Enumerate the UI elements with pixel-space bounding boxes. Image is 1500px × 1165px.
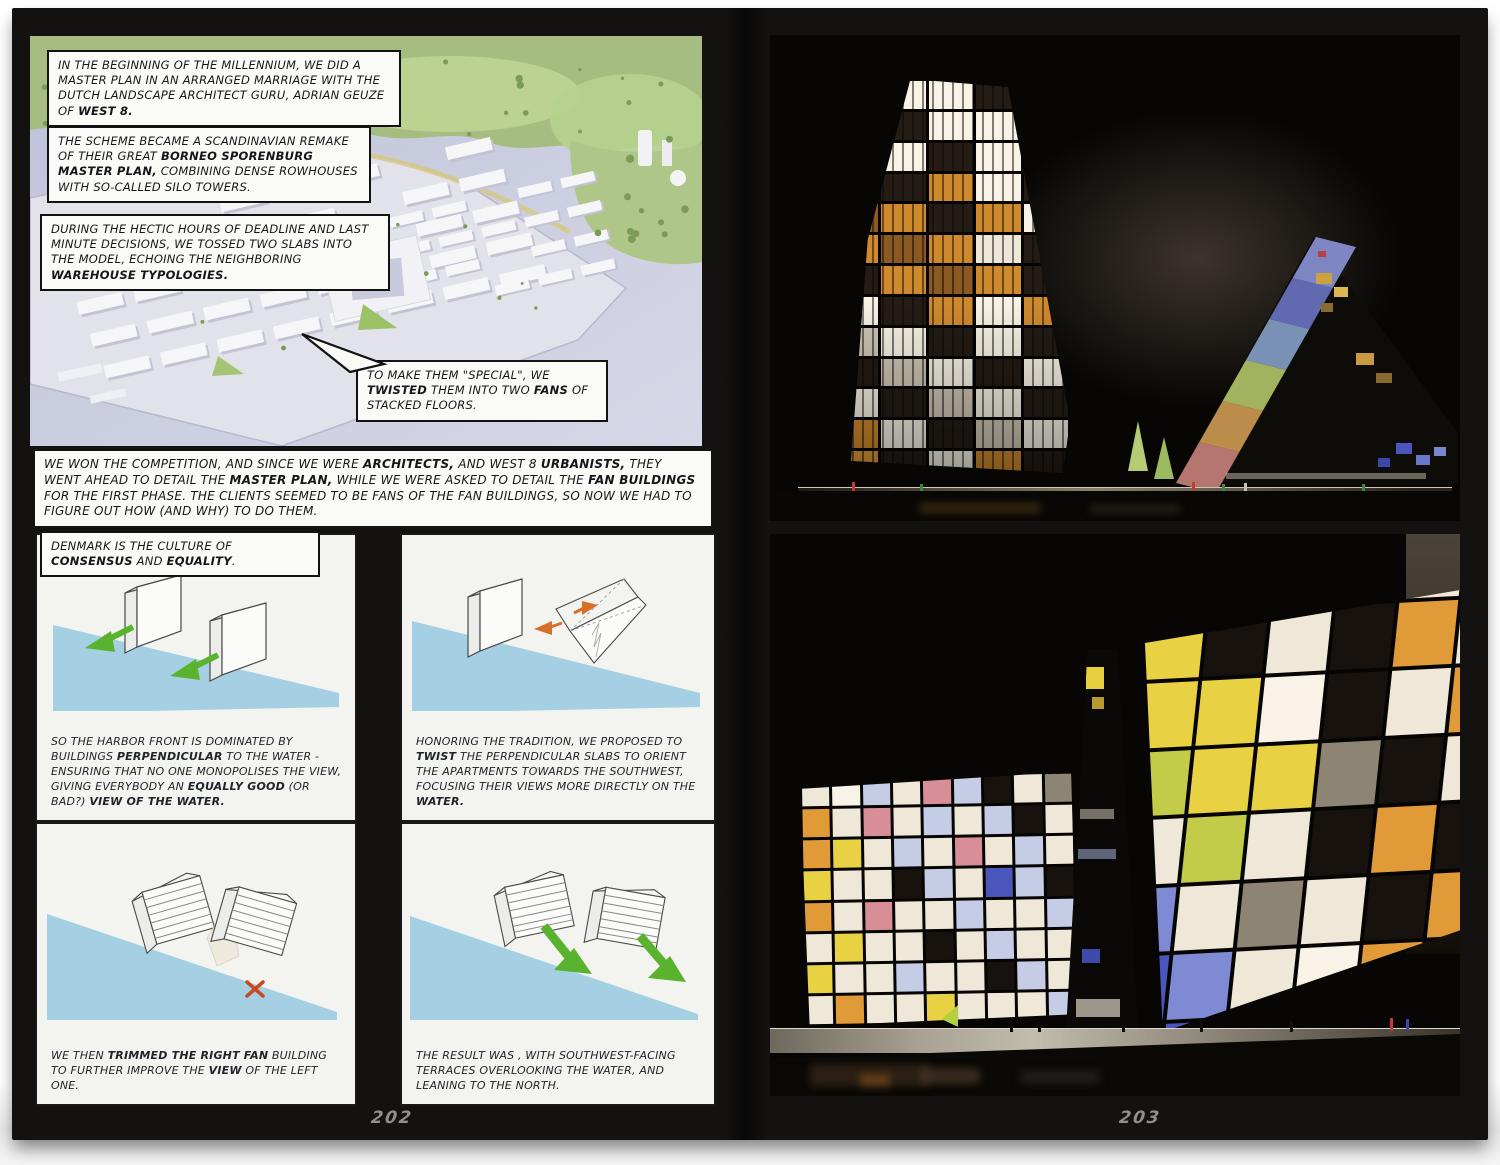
facade-cell [1018, 992, 1046, 1021]
lit-window [1076, 999, 1120, 1017]
facade-cell [835, 964, 863, 993]
facade-cell [835, 933, 863, 962]
facade-cell [804, 871, 832, 900]
facade-cell [1125, 750, 1191, 818]
panel-result: THE RESULT WAS , WITH SOUTHWEST-FACING T… [400, 822, 716, 1106]
book-spine [724, 8, 768, 1140]
facade-cell [893, 776, 921, 805]
facade-cell [1132, 681, 1198, 749]
facade-cell [1046, 867, 1074, 896]
facade-cell [1174, 883, 1240, 951]
facade-cell [1210, 541, 1276, 609]
facade-cell [863, 777, 891, 806]
facade-cell [834, 871, 862, 900]
facade-cell [805, 965, 833, 994]
lit-window [1092, 697, 1104, 709]
model-figure [852, 482, 855, 491]
facade-cell [984, 775, 1012, 804]
panel-caption-1: SO THE HARBOR FRONT IS DOMINATED BY BUIL… [37, 729, 355, 820]
facade-cell [1195, 678, 1261, 746]
facade-cell [925, 900, 953, 929]
speech-bubble: TO MAKE THEM "SPECIAL", WE TWISTED THEM … [356, 360, 608, 422]
model-figure [1406, 1019, 1409, 1031]
facade-cell [863, 808, 891, 837]
book-spread-photo: IN THE BEGINNING OF THE MILLENNIUM, WE D… [0, 0, 1500, 1165]
facade-cell [1378, 736, 1444, 804]
facade-cell [1315, 740, 1381, 808]
facade-cell [897, 994, 925, 1023]
caption-box-millennium: IN THE BEGINNING OF THE MILLENNIUM, WE D… [47, 50, 401, 127]
left-slab-model [800, 772, 1078, 1027]
facade-cell [864, 839, 892, 868]
facade-cell [1202, 609, 1268, 677]
panel-caption-4: THE RESULT WAS , WITH SOUTHWEST-FACING T… [402, 1043, 714, 1104]
lit-window [1086, 667, 1104, 689]
facade-cell [804, 902, 832, 931]
right-tower-model [1166, 233, 1458, 487]
facade-cell [1017, 961, 1045, 990]
facade-cell [1251, 743, 1317, 811]
panel-trim: WE THEN TRIMMED THE RIGHT FAN BUILDING T… [35, 822, 357, 1106]
facade-cell [1337, 534, 1403, 602]
facade-cell [955, 837, 983, 866]
facade-cell [802, 809, 830, 838]
facade-cell [865, 932, 893, 961]
facade-cell [924, 838, 952, 867]
facade-cell [1017, 930, 1045, 959]
center-tower-model [1066, 649, 1138, 1031]
facade-cell [836, 995, 864, 1024]
facade-cell [803, 840, 831, 869]
facade-cell [925, 869, 953, 898]
facade-cell [1293, 945, 1359, 1013]
facade-cell [893, 807, 921, 836]
model-figure [1010, 1020, 1013, 1032]
lit-window [1078, 849, 1116, 859]
facade-cell [1047, 898, 1075, 927]
facade-cell [896, 932, 924, 961]
facade-cell [1244, 811, 1310, 879]
model-figure [1038, 1021, 1041, 1032]
facade-cell [896, 963, 924, 992]
facade-cell [894, 870, 922, 899]
facade-cell [802, 778, 830, 807]
facade-cell [806, 996, 834, 1025]
facade-cell [834, 902, 862, 931]
caption-box-scheme: THE SCHEME BECAME A SCANDINAVIAN REMAKE … [47, 126, 371, 203]
facade-cell [833, 808, 861, 837]
facade-cell [864, 870, 892, 899]
facade-cell [1442, 733, 1460, 801]
facade-cell [1166, 952, 1232, 1020]
facade-cell [988, 993, 1016, 1022]
facade-cell [805, 933, 833, 962]
speech-bubble-text: TO MAKE THEM "SPECIAL", WE TWISTED THEM … [367, 368, 588, 412]
facade-cell [866, 995, 894, 1024]
facade-cell [1016, 899, 1044, 928]
facade-cell [954, 775, 982, 804]
facade-cell [1045, 805, 1073, 834]
reflection [920, 1068, 980, 1084]
facade-cell [832, 777, 860, 806]
facade-cell [1435, 801, 1460, 869]
lit-window [1080, 809, 1114, 819]
facade-cell [1427, 870, 1460, 938]
reflection [1090, 505, 1180, 513]
facade-cell [833, 840, 861, 869]
model-tree [1154, 437, 1174, 479]
facade-cell [986, 899, 1014, 928]
facade-cell [1393, 599, 1459, 667]
facade-cell [956, 900, 984, 929]
model-figure [1390, 1018, 1393, 1031]
facade-cell [1016, 868, 1044, 897]
facade-cell [1046, 836, 1074, 865]
facade-cell [1014, 774, 1042, 803]
book-spread: IN THE BEGINNING OF THE MILLENNIUM, WE D… [12, 8, 1488, 1140]
facade-cell [955, 869, 983, 898]
facade-cell [1181, 815, 1247, 883]
caption-box-denmark: DENMARK IS THE CULTURE OF CONSENSUS AND … [40, 531, 320, 577]
facade-cell [1259, 674, 1325, 742]
facade-cell [894, 839, 922, 868]
facade-cell [1237, 880, 1303, 948]
reflection [860, 1074, 890, 1086]
model-figure [1200, 1022, 1203, 1032]
facade-cell [1139, 613, 1205, 681]
facade-cell [1301, 877, 1367, 945]
panel-twist: HONORING THE TRADITION, WE PROPOSED TO T… [400, 533, 716, 822]
caption-box-deadline: DURING THE HECTIC HOURS OF DEADLINE AND … [40, 214, 390, 291]
facade-cell [1044, 774, 1072, 803]
lit-window [1082, 949, 1100, 963]
model-figure [1122, 1020, 1125, 1032]
photo-foreground [770, 491, 1460, 521]
facade-cell [985, 837, 1013, 866]
sail-tower-art [1166, 233, 1458, 487]
facade-cell [1015, 836, 1043, 865]
facade-cell [926, 931, 954, 960]
reflection [920, 503, 1040, 513]
facade-cell [1329, 603, 1395, 671]
facade-cell [984, 806, 1012, 835]
facade-cell [1386, 668, 1452, 736]
speech-bubble-tail [300, 332, 386, 374]
model-figure [1290, 1021, 1293, 1032]
facade-cell [1364, 873, 1430, 941]
facade-cell [985, 868, 1013, 897]
photo-tower-models-night [770, 35, 1460, 521]
model-figure [1192, 482, 1195, 491]
facade-cell [1146, 544, 1212, 612]
facade-cell [1273, 537, 1339, 605]
facade-cell [987, 961, 1015, 990]
facade-cell [866, 964, 894, 993]
facade-cell [926, 963, 954, 992]
page-number-left: 202 [336, 1108, 449, 1128]
facade-cell [1015, 805, 1043, 834]
model-tree [1128, 421, 1148, 471]
diagram-twisted-slab [402, 535, 710, 711]
facade-cell [1266, 606, 1332, 674]
facade-cell [1230, 948, 1296, 1016]
facade-cell [895, 901, 923, 930]
facade-cell [1322, 671, 1388, 739]
facade-cell [957, 962, 985, 991]
facade-cell [1188, 746, 1254, 814]
facade-cell [865, 901, 893, 930]
diagram-trimmed-fans [37, 824, 351, 1020]
facade-cell [956, 931, 984, 960]
diagram-result-fans [402, 824, 710, 1020]
facade-cell [923, 776, 951, 805]
caption-box-competition: WE WON THE COMPETITION, AND SINCE WE WER… [33, 449, 713, 528]
right-slab-model [1102, 590, 1460, 1032]
facade-cell [987, 930, 1015, 959]
reflection [1020, 1070, 1100, 1084]
facade-cell [954, 806, 982, 835]
facade-cell [1308, 808, 1374, 876]
facade-cell [1083, 547, 1149, 615]
facade-cell [1371, 805, 1437, 873]
panel-caption-3: WE THEN TRIMMED THE RIGHT FAN BUILDING T… [37, 1043, 355, 1104]
photo-slab-models-night [770, 534, 1460, 1096]
facade-cell [924, 807, 952, 836]
page-number-right: 203 [1084, 1108, 1197, 1128]
panel-caption-2: HONORING THE TRADITION, WE PROPOSED TO T… [402, 729, 714, 820]
